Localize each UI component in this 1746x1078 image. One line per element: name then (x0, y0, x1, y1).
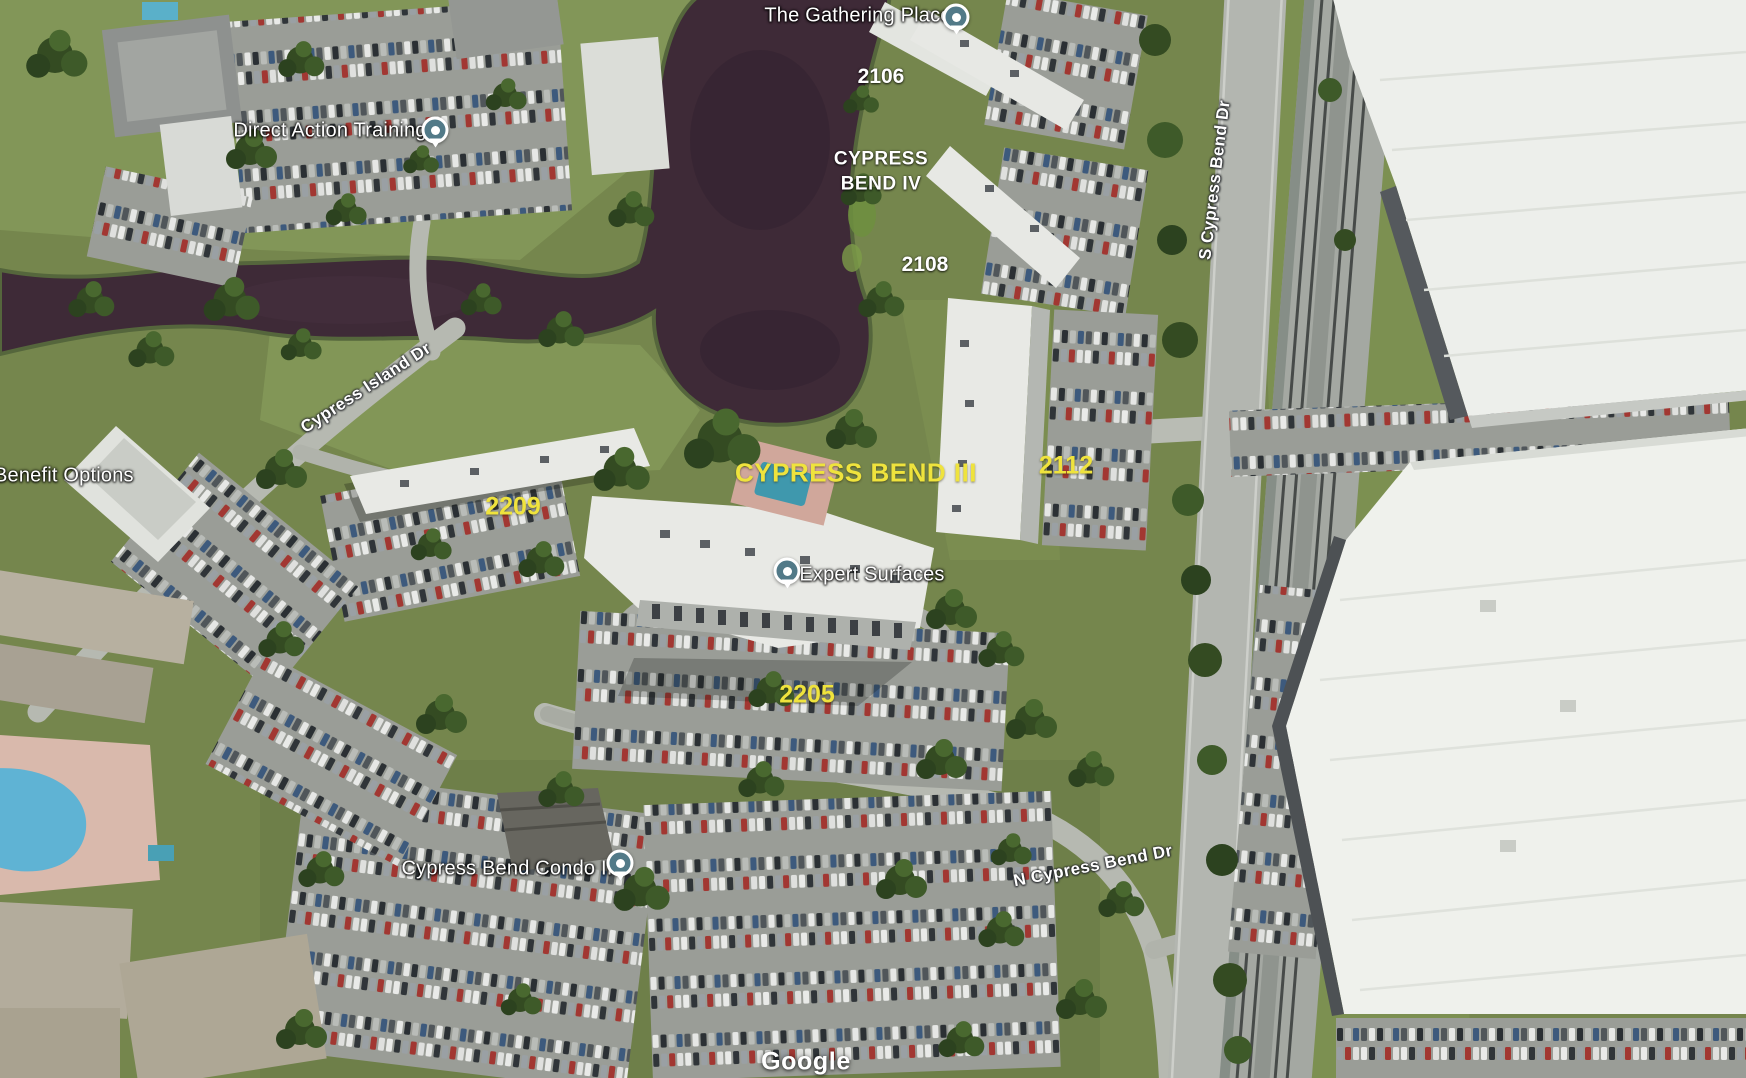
building-number-2108: 2108 (902, 253, 949, 277)
pin-tail-icon (614, 872, 626, 881)
pin-tail-icon (781, 580, 793, 589)
building-number-2209: 2209 (485, 493, 541, 522)
poi-label-gathering-place[interactable]: The Gathering Place (764, 5, 951, 28)
pin-dot-icon (616, 859, 625, 868)
pin-dot-icon (431, 126, 440, 135)
building-number-2205: 2205 (779, 681, 835, 710)
area-label-cypress-bend-iv: CYPRESS BEND IV (816, 147, 946, 196)
building-number-2112: 2112 (1039, 452, 1093, 481)
area-label-cypress-bend-iii: CYPRESS BEND III (731, 459, 981, 488)
poi-label-benefit-options[interactable]: Benefit Options (0, 465, 134, 488)
pin-dot-icon (783, 567, 792, 576)
building-number-2106: 2106 (858, 65, 905, 89)
map-canvas[interactable]: The Gathering Place Direct Action Traini… (0, 0, 1746, 1078)
place-pin-icon[interactable] (607, 850, 634, 877)
poi-label-direct-action-training[interactable]: Direct Action Training (233, 120, 426, 143)
pin-dot-icon (952, 13, 961, 22)
pin-tail-icon (429, 139, 441, 148)
google-watermark[interactable]: Google (761, 1048, 851, 1077)
place-pin-icon[interactable] (422, 117, 449, 144)
pin-tail-icon (950, 26, 962, 35)
poi-label-cypress-bend-condo-2[interactable]: Cypress Bend Condo II (402, 858, 613, 881)
place-pin-icon[interactable] (774, 558, 801, 585)
poi-label-expert-surfaces[interactable]: Expert Surfaces (799, 564, 944, 587)
place-pin-icon[interactable] (943, 4, 970, 31)
